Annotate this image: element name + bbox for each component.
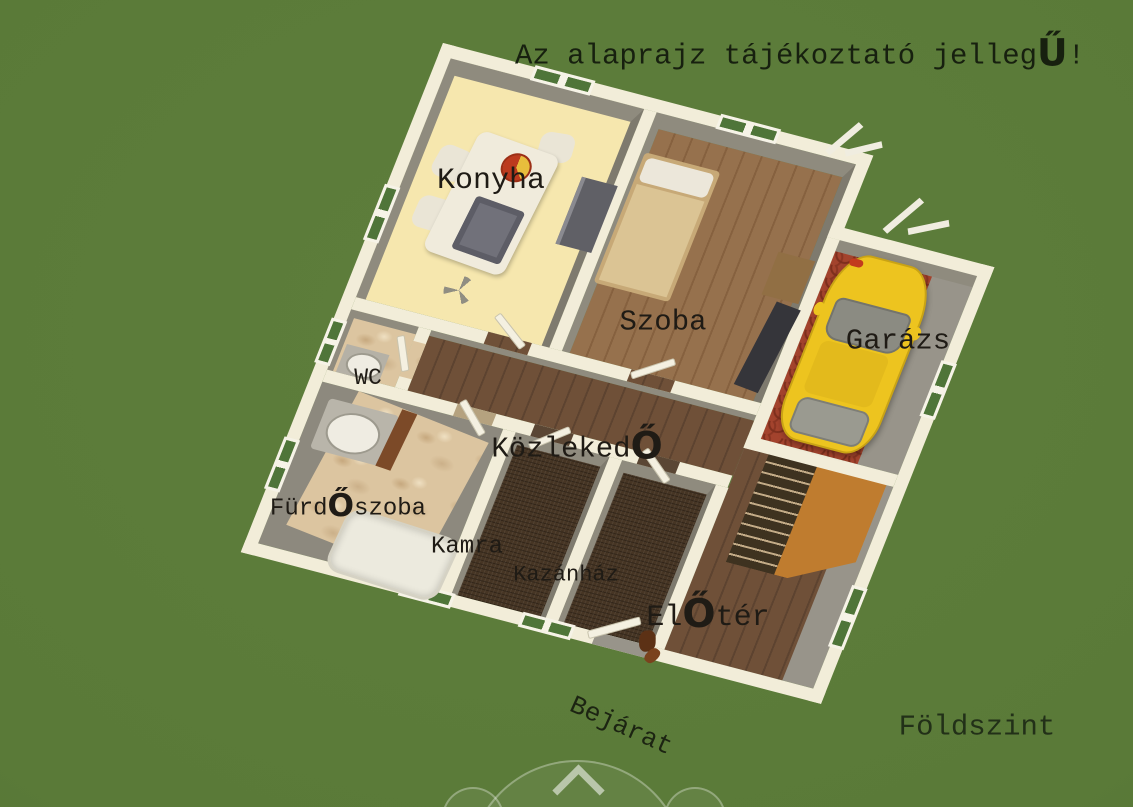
entrance-label: Bejárat: [565, 690, 677, 762]
room-label-kozlekedo: KözlekedŐ: [491, 433, 662, 466]
room-label-konyha: Konyha: [437, 164, 545, 198]
room-label-wc: WC: [354, 365, 382, 391]
room-label-kazanhaz: Kazánház: [513, 563, 619, 588]
navigation-right-control[interactable]: [664, 787, 726, 807]
disclaimer-text: Az alaprajz tájékoztató jellegŰ!: [515, 40, 1085, 73]
room-label-furdoszoba: FürdŐszoba: [270, 496, 426, 523]
room-label-szoba: Szoba: [619, 306, 706, 339]
floor-name-label: Földszint: [899, 711, 1056, 744]
open-window-shutter: [908, 220, 950, 235]
floorplan-3d-view[interactable]: Az alaprajz tájékoztató jellegŰ!: [0, 0, 1133, 807]
room-label-eloter: ElŐtér: [646, 601, 769, 635]
navigation-left-control[interactable]: [442, 787, 504, 807]
room-label-garazs: Garázs: [846, 325, 950, 358]
room-label-kamra: Kamra: [431, 534, 503, 561]
car-taillight: [848, 257, 864, 268]
